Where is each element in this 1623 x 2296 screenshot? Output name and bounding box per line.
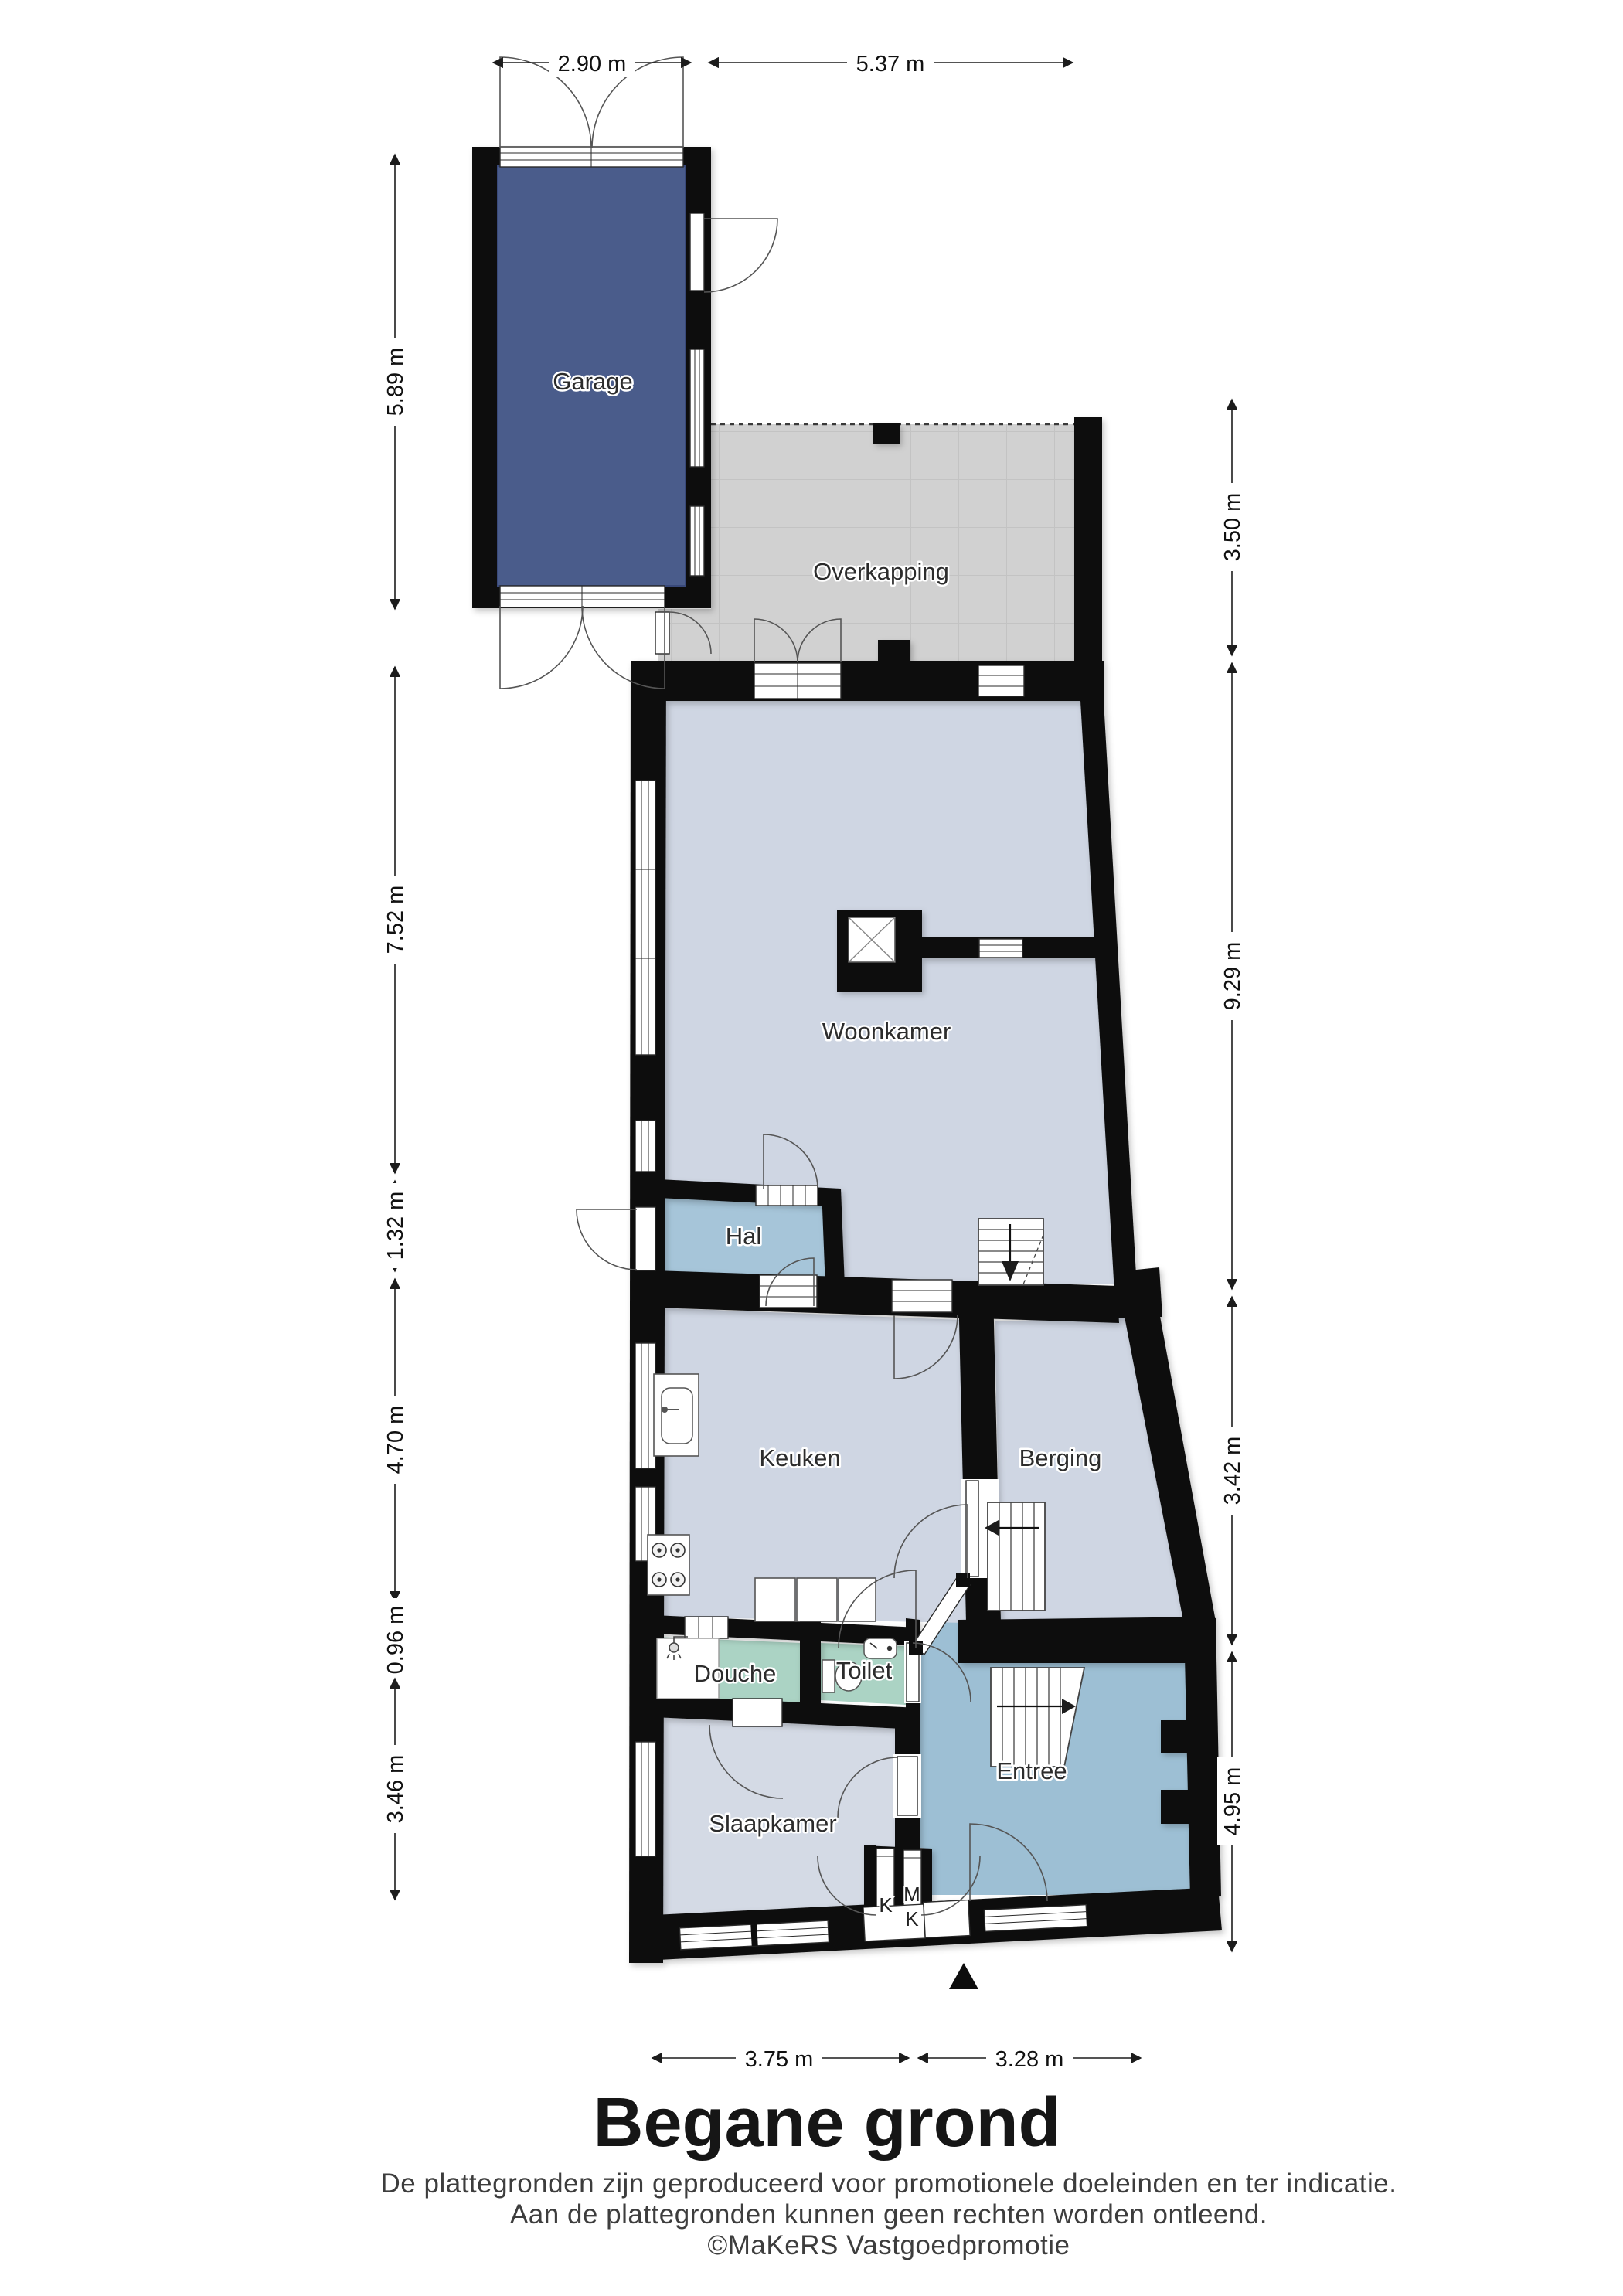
stairs-woonkamer: [978, 1219, 1043, 1285]
kitchen-sink: [654, 1374, 699, 1456]
keuken-window-1: [635, 1343, 655, 1468]
svg-text:4.70 m: 4.70 m: [383, 1406, 408, 1475]
svg-text:7.52 m: 7.52 m: [383, 886, 408, 954]
overkapping-gate: [655, 612, 669, 654]
stove: [648, 1535, 689, 1595]
svg-text:5.37 m: 5.37 m: [856, 52, 925, 77]
svg-text:0.96 m: 0.96 m: [383, 1606, 408, 1675]
stairs-berging: [985, 1502, 1045, 1611]
keuken-label: Keuken: [759, 1444, 840, 1471]
dim-right-350: 3.50 m: [1217, 400, 1247, 655]
dim-left-132: 1.32 m: [380, 1181, 410, 1271]
woonkamer-left-window: [635, 781, 655, 1055]
entrance-arrow-icon: [949, 1963, 978, 1989]
douche-slaapkamer-door: [733, 1699, 782, 1726]
fireplace: [849, 917, 895, 962]
page-title: Begane grond: [593, 2083, 1060, 2163]
toilet-label: Toilet: [836, 1657, 893, 1684]
dim-left-096: 0.96 m: [380, 1598, 410, 1682]
svg-text:3.42 m: 3.42 m: [1220, 1437, 1245, 1505]
floor-plan: Garage Overkapping Woonkamer Hal Keuken …: [0, 0, 1623, 2296]
closet-k2-label: K: [905, 1907, 919, 1930]
dim-top-537: 5.37 m: [709, 48, 1073, 77]
dim-right-342: 3.42 m: [1217, 1297, 1247, 1645]
woonkamer-terrace-door: [754, 663, 841, 699]
svg-text:3.28 m: 3.28 m: [995, 2047, 1064, 2072]
credit-line: ©MaKeRS Vastgoedpromotie: [381, 2230, 1397, 2261]
svg-text:4.95 m: 4.95 m: [1220, 1767, 1245, 1836]
woonkamer-top-window: [978, 665, 1024, 696]
overkapping-label: Overkapping: [813, 558, 949, 585]
hal-woonkamer-door: [756, 1185, 818, 1206]
douche-label: Douche: [694, 1660, 777, 1687]
garage-door-bottom: [500, 586, 665, 607]
hal-exterior-door-swing: [577, 1209, 637, 1270]
dim-left-752: 7.52 m: [380, 667, 410, 1173]
dim-left-470: 4.70 m: [380, 1279, 410, 1601]
garage-door-top: [500, 147, 683, 167]
woonkamer-inner-window: [979, 939, 1022, 958]
closet-k-label: K: [879, 1893, 893, 1917]
garage-side-door: [690, 213, 704, 291]
toilet-sink: [864, 1638, 897, 1658]
overkapping-area: [658, 424, 1102, 665]
entree-bottom-window: [984, 1905, 1087, 1932]
svg-text:3.46 m: 3.46 m: [383, 1755, 408, 1824]
woonkamer-label: Woonkamer: [822, 1018, 951, 1045]
garage-window-1: [690, 349, 704, 467]
svg-text:2.90 m: 2.90 m: [558, 52, 627, 77]
kitchen-counter: [755, 1578, 876, 1621]
svg-text:3.75 m: 3.75 m: [745, 2047, 814, 2072]
garage-label: Garage: [553, 368, 632, 395]
hal-label: Hal: [726, 1223, 762, 1250]
dim-right-929: 9.29 m: [1217, 663, 1247, 1289]
dim-bottom-328: 3.28 m: [918, 2043, 1141, 2073]
svg-text:5.89 m: 5.89 m: [383, 348, 408, 417]
woonkamer-keuken-door: [892, 1280, 952, 1312]
svg-text:9.29 m: 9.29 m: [1220, 942, 1245, 1011]
berging-label: Berging: [1019, 1444, 1102, 1471]
disclaimer-line-1: De plattegronden zijn geproduceerd voor …: [381, 2168, 1397, 2199]
dim-right-495: 4.95 m: [1217, 1652, 1247, 1951]
keuken-douche-door: [685, 1617, 728, 1638]
slaapkamer-label: Slaapkamer: [709, 1810, 836, 1837]
garage-window-2: [690, 506, 704, 576]
closet-m-label: M: [903, 1883, 920, 1906]
svg-text:1.32 m: 1.32 m: [383, 1192, 408, 1260]
slaapkamer-left-window: [635, 1742, 655, 1856]
svg-text:3.50 m: 3.50 m: [1220, 493, 1245, 562]
front-door: [924, 1900, 970, 1938]
garage-side-door-swing: [704, 219, 777, 292]
left-window-2: [635, 1121, 655, 1172]
disclaimer-line-2: Aan de plattegronden kunnen geen rechten…: [381, 2199, 1397, 2230]
dim-bottom-375: 3.75 m: [652, 2043, 909, 2073]
hal-exterior-door: [635, 1207, 655, 1270]
dim-left-589: 5.89 m: [380, 155, 410, 609]
dim-top-290: 2.90 m: [493, 48, 691, 77]
dim-left-346: 3.46 m: [380, 1679, 410, 1900]
slaapkamer-entree-door: [893, 1754, 921, 1818]
entree-label: Entree: [996, 1757, 1067, 1784]
disclaimer: De plattegronden zijn geproduceerd voor …: [381, 2168, 1397, 2261]
